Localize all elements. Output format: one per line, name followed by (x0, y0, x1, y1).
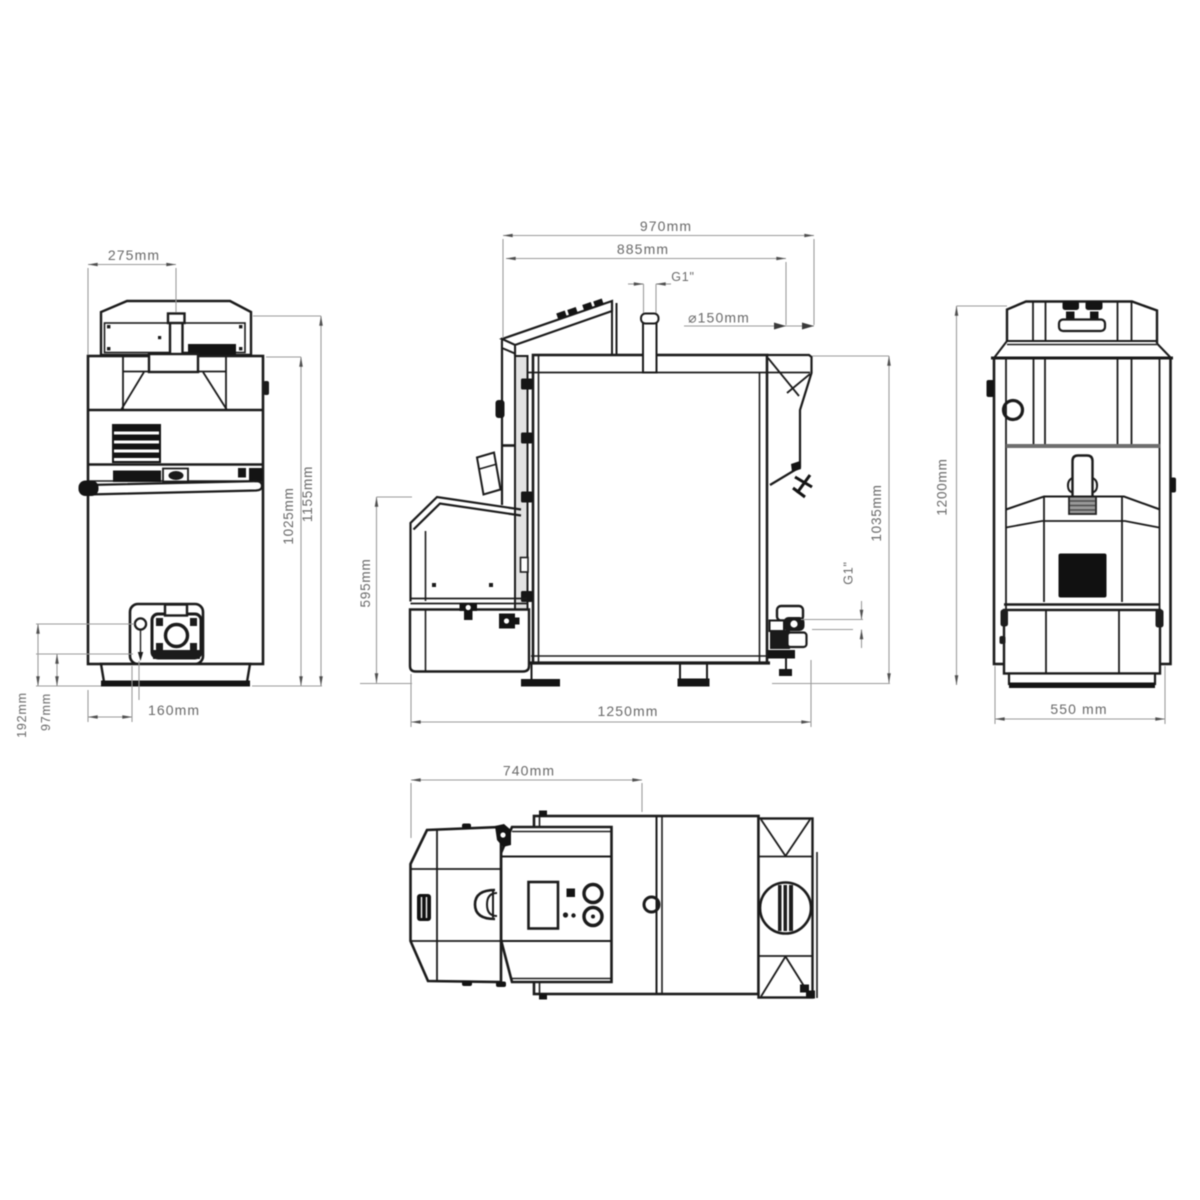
svg-text:1250mm: 1250mm (597, 703, 658, 719)
svg-text:550 mm: 550 mm (1050, 701, 1107, 717)
svg-text:1025mm: 1025mm (281, 487, 296, 544)
svg-text:595mm: 595mm (358, 558, 373, 607)
svg-text:160mm: 160mm (148, 702, 200, 718)
svg-text:1155mm: 1155mm (300, 466, 315, 522)
svg-text:G1": G1" (671, 270, 695, 284)
svg-text:97mm: 97mm (39, 693, 53, 731)
svg-text:1035mm: 1035mm (869, 484, 884, 541)
svg-text:⌀150mm: ⌀150mm (688, 310, 750, 326)
svg-text:1200mm: 1200mm (935, 458, 950, 515)
svg-text:G1": G1" (842, 561, 856, 585)
svg-text:275mm: 275mm (108, 247, 160, 263)
svg-text:740mm: 740mm (503, 763, 555, 779)
svg-text:970mm: 970mm (640, 218, 692, 234)
svg-text:192mm: 192mm (15, 692, 29, 738)
svg-text:885mm: 885mm (617, 241, 669, 257)
